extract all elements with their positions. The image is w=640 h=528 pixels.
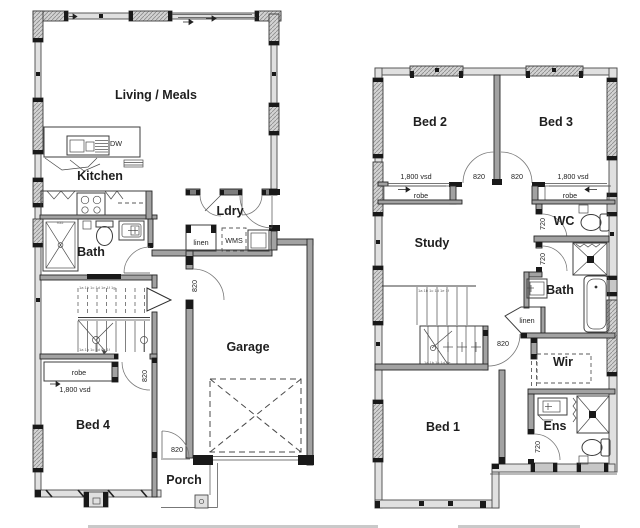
svg-text:1a 1b 1c 1d 1e 1f: 1a 1b 1c 1d 1e 1f	[418, 288, 450, 293]
svg-text:Bed 3: Bed 3	[539, 115, 573, 129]
svg-text:Bath: Bath	[546, 283, 574, 297]
svg-text:1,800 vsd: 1,800 vsd	[557, 172, 588, 181]
svg-text:1a 1b 1c 1d 1e 1f: 1a 1b 1c 1d 1e 1f	[79, 347, 111, 352]
svg-text:Kitchen: Kitchen	[77, 169, 123, 183]
svg-text:1,800 vsd: 1,800 vsd	[59, 385, 90, 394]
svg-text:820: 820	[497, 339, 509, 348]
svg-text:linen: linen	[519, 316, 534, 325]
svg-text:820: 820	[473, 172, 485, 181]
svg-text:Ldry: Ldry	[216, 204, 243, 218]
svg-text:1,800 vsd: 1,800 vsd	[400, 172, 431, 181]
svg-text:linen: linen	[193, 238, 208, 247]
svg-text:820: 820	[511, 172, 523, 181]
svg-text:935: 935	[57, 220, 64, 225]
svg-text:820: 820	[190, 280, 199, 292]
svg-text:Bath: Bath	[77, 245, 105, 259]
svg-text:DW: DW	[110, 139, 122, 148]
svg-text:Bed 2: Bed 2	[413, 115, 447, 129]
svg-text:820: 820	[171, 445, 183, 454]
svg-text:Porch: Porch	[166, 473, 201, 487]
svg-text:720: 720	[538, 253, 547, 265]
svg-text:820: 820	[140, 370, 149, 382]
svg-text:WC: WC	[554, 214, 575, 228]
svg-text:Bed 4: Bed 4	[76, 418, 110, 432]
svg-text:Ens: Ens	[544, 419, 567, 433]
svg-text:robe: robe	[563, 191, 577, 200]
svg-text:Wir: Wir	[553, 355, 573, 369]
svg-text:1a 1b 1c 1d 1e 1f 1g: 1a 1b 1c 1d 1e 1f 1g	[79, 285, 115, 290]
svg-text:720: 720	[538, 218, 547, 230]
svg-text:Living / Meals: Living / Meals	[115, 88, 197, 102]
svg-text:Study: Study	[415, 236, 450, 250]
svg-text:WMS: WMS	[225, 236, 243, 245]
svg-text:720: 720	[533, 441, 542, 453]
svg-text:Garage: Garage	[226, 340, 269, 354]
svg-text:robe: robe	[414, 191, 428, 200]
svg-text:robe: robe	[72, 368, 86, 377]
svg-text:Bed 1: Bed 1	[426, 420, 460, 434]
